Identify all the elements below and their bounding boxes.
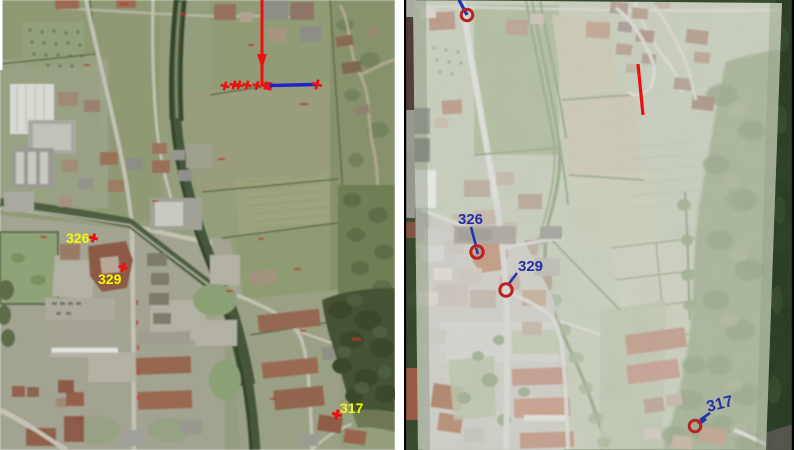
svg-text:329: 329	[98, 271, 122, 287]
svg-text:326: 326	[66, 230, 90, 246]
svg-text:329: 329	[518, 258, 543, 275]
svg-text:317: 317	[340, 400, 364, 416]
svg-text:326: 326	[458, 211, 483, 228]
